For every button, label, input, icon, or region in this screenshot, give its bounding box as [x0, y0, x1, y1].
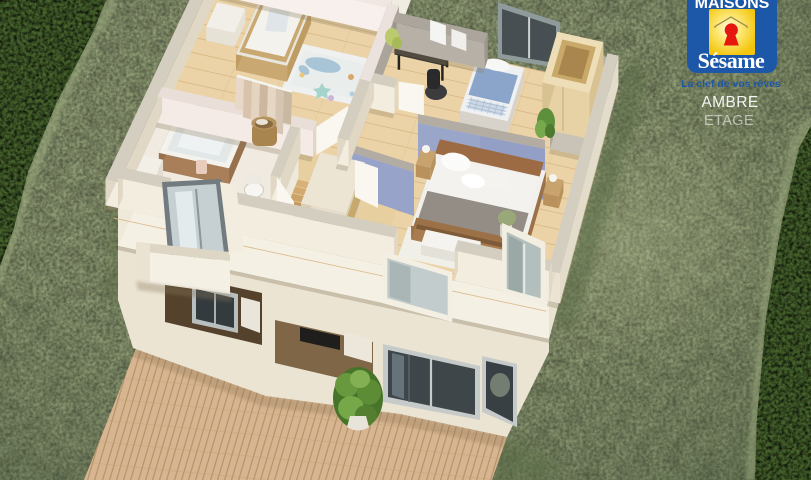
svg-text:ETAGE: ETAGE: [704, 113, 754, 129]
svg-text:La clef de vos rêves: La clef de vos rêves: [681, 78, 781, 90]
svg-text:Sésame: Sésame: [698, 48, 765, 73]
svg-text:AMBRE: AMBRE: [701, 94, 758, 111]
